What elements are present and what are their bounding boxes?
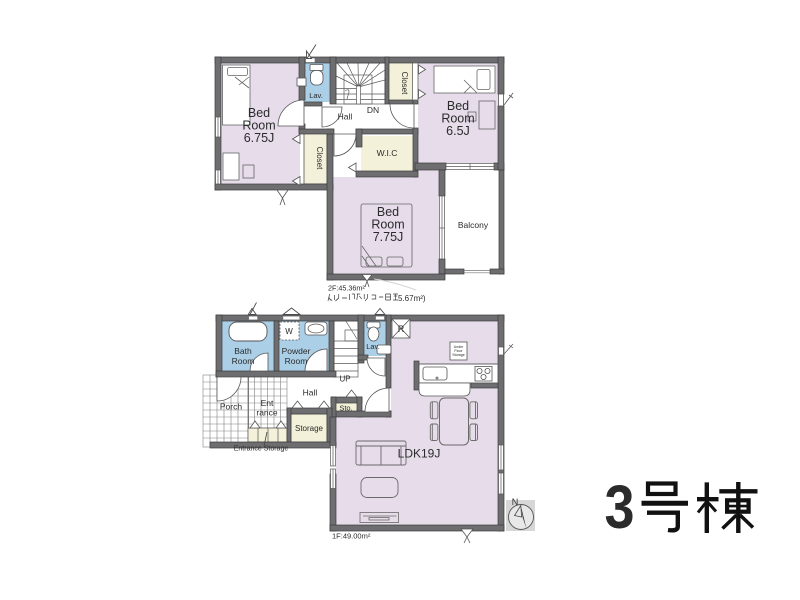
svg-text:W: W [285,327,293,336]
svg-text:Lav.: Lav. [309,91,323,100]
svg-text:7.75J: 7.75J [373,230,404,244]
svg-text:LDK19J: LDK19J [398,447,441,461]
svg-text:Balcony: Balcony [458,220,489,230]
svg-text:rance: rance [256,408,278,418]
svg-text:2F:45.36m²: 2F:45.36m² [328,284,365,293]
svg-text:Powder: Powder [282,346,311,356]
svg-text:Sto.: Sto. [339,404,352,413]
svg-text:Storage: Storage [452,353,465,357]
svg-text:DN: DN [367,105,379,115]
svg-text:Closet: Closet [400,72,409,95]
svg-text:3: 3 [605,473,635,541]
svg-text:Lav.: Lav. [366,342,380,351]
svg-text:R: R [398,324,405,334]
svg-text:Hall: Hall [303,388,318,398]
svg-text:W.I.C: W.I.C [377,148,398,158]
svg-text:Ent: Ent [261,398,274,408]
svg-text:Room: Room [285,356,308,366]
svg-text:Entrance Storage: Entrance Storage [234,446,289,453]
svg-text:Porch: Porch [220,402,242,412]
svg-text:1F:49.00m²: 1F:49.00m² [332,532,371,541]
svg-text:6.75J: 6.75J [244,131,275,145]
svg-text:Hall: Hall [338,112,353,122]
svg-text:N: N [512,497,519,507]
svg-text:Closet: Closet [315,147,324,170]
svg-text:Storage: Storage [295,424,324,433]
svg-text:UP: UP [339,375,350,384]
svg-text:5.67m²): 5.67m²) [398,294,426,303]
svg-text:Bath: Bath [234,346,252,356]
svg-text:Room: Room [232,356,255,366]
svg-text:6.5J: 6.5J [446,124,470,138]
